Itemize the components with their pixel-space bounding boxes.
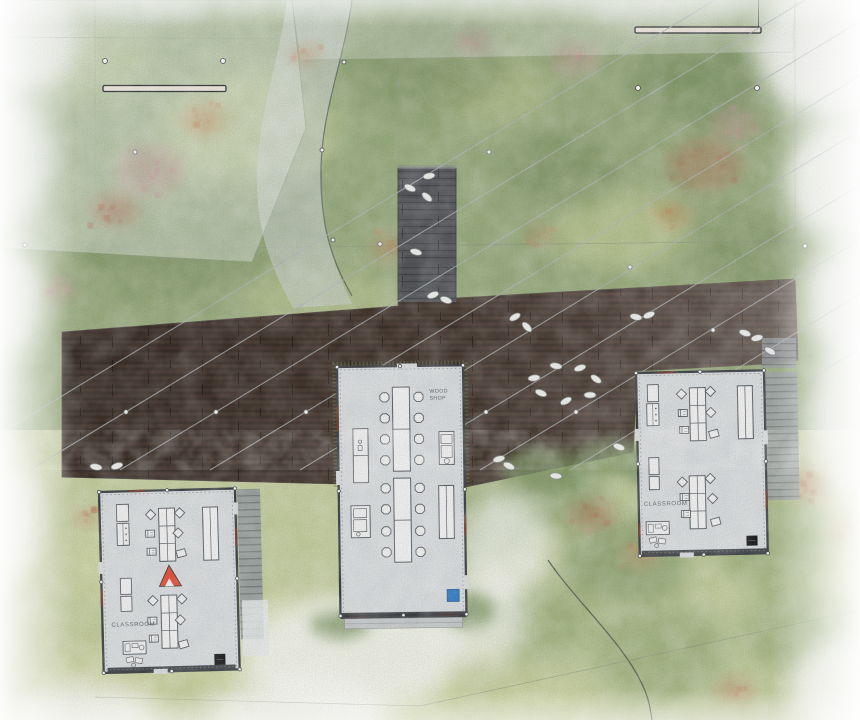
fade-left <box>0 0 75 720</box>
site-plan-drawing: CLASSROOM WOOD SHOP <box>0 0 860 720</box>
fade-top <box>0 0 860 26</box>
paper-texture <box>0 0 860 720</box>
paper-grain <box>0 0 860 720</box>
fade-bottom <box>0 690 860 720</box>
fade-right <box>770 0 860 720</box>
site-plan-canvas: CLASSROOM WOOD SHOP <box>0 0 860 720</box>
